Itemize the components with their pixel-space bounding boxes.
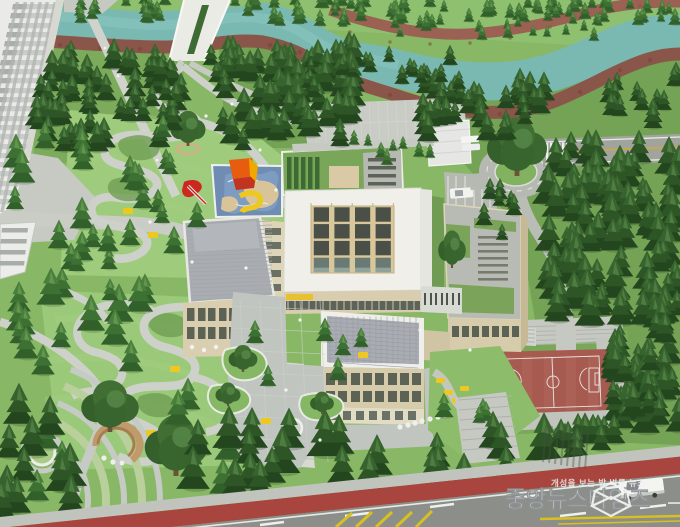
svg-text:—: — (668, 492, 680, 512)
